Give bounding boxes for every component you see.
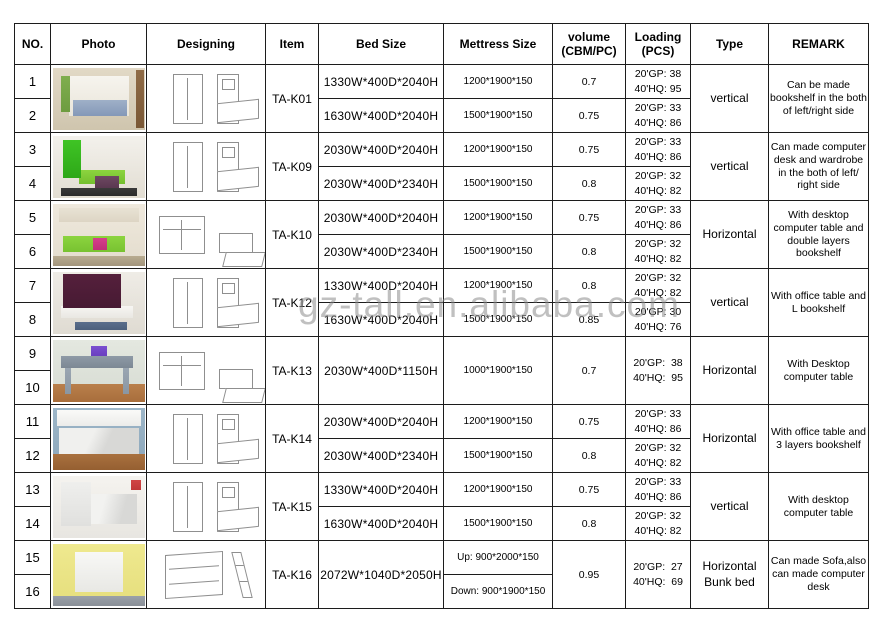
col-header-photo: Photo (51, 24, 147, 65)
mattress-size: 1200*1900*150 (444, 65, 553, 99)
product-photo (51, 133, 147, 201)
loading-20gp: 20'GP: 32 (626, 237, 690, 251)
row-number: 3 (15, 133, 51, 167)
loading-40hq: 40'HQ: 82 (626, 286, 690, 300)
volume-value: 0.8 (553, 269, 626, 303)
loading-20gp: 20'GP: 33 (626, 407, 690, 421)
cabinet-sketch-icon (173, 482, 203, 532)
remark-text: With desktop computer table (769, 473, 869, 541)
loading-value: 20'GP: 3240'HQ: 82 (626, 507, 691, 541)
col-header-volume-line1: volume (553, 30, 625, 44)
type-line: vertical (691, 295, 768, 311)
loading-40hq: 40'HQ: 69 (626, 575, 690, 589)
loading-40hq: 40'HQ: 95 (626, 82, 690, 96)
product-photo-image (53, 340, 145, 402)
cabinet-sketch-icon (159, 352, 205, 390)
mattress-size: 1500*1900*150 (444, 439, 553, 473)
mattress-size: 1200*1900*150 (444, 405, 553, 439)
loading-value: 20'GP: 3340'HQ: 86 (626, 473, 691, 507)
loading-20gp: 20'GP: 33 (626, 101, 690, 115)
bed-size: 2030W*400D*2040H (319, 405, 444, 439)
design-sketch (147, 337, 266, 405)
row-number: 7 (15, 269, 51, 303)
loading-value: 20'GP: 3340'HQ: 86 (626, 201, 691, 235)
product-spec-sheet: gz-tall.en.alibaba.com NO. Photo Designi… (0, 0, 886, 627)
remark-text: Can be made bookshelf in the both of lef… (769, 65, 869, 133)
volume-value: 0.75 (553, 133, 626, 167)
product-photo (51, 65, 147, 133)
item-code: TA-K09 (266, 133, 319, 201)
product-photo-image (53, 136, 145, 198)
col-header-type: Type (691, 24, 769, 65)
loading-40hq: 40'HQ: 82 (626, 184, 690, 198)
design-sketch (147, 473, 266, 541)
row-number: 11 (15, 405, 51, 439)
item-code: TA-K16 (266, 541, 319, 609)
col-header-loading-line1: Loading (626, 30, 690, 44)
volume-value: 0.8 (553, 507, 626, 541)
bed-size: 2030W*400D*2040H (319, 133, 444, 167)
loading-20gp: 20'GP: 33 (626, 135, 690, 149)
item-code: TA-K13 (266, 337, 319, 405)
remark-text: With desktop computer table and double l… (769, 201, 869, 269)
loading-40hq: 40'HQ: 86 (626, 422, 690, 436)
product-photo-image (53, 272, 145, 334)
bed-size: 2030W*400D*2340H (319, 167, 444, 201)
row-number: 1 (15, 65, 51, 99)
col-header-bed-size: Bed Size (319, 24, 444, 65)
mattress-size: 1200*1900*150 (444, 133, 553, 167)
type-line: Horizontal (691, 431, 768, 447)
type-line: Bunk bed (691, 575, 768, 591)
type-line: vertical (691, 159, 768, 175)
remark-text: With office table and L bookshelf (769, 269, 869, 337)
loading-20gp: 20'GP: 33 (626, 475, 690, 489)
product-photo-image (53, 408, 145, 470)
bed-size: 2030W*400D*2340H (319, 439, 444, 473)
row-number: 4 (15, 167, 51, 201)
loading-value: 20'GP: 3240'HQ: 82 (626, 167, 691, 201)
loading-20gp: 20'GP: 38 (626, 356, 690, 370)
loading-40hq: 40'HQ: 86 (626, 116, 690, 130)
loading-40hq: 40'HQ: 82 (626, 252, 690, 266)
col-header-remark: REMARK (769, 24, 869, 65)
loading-value: 20'GP: 3340'HQ: 86 (626, 99, 691, 133)
type-value: vertical (691, 269, 769, 337)
loading-40hq: 40'HQ: 86 (626, 150, 690, 164)
design-sketch (147, 405, 266, 473)
cabinet-sketch-icon (173, 414, 203, 464)
type-value: vertical (691, 65, 769, 133)
mattress-size: 1200*1900*150 (444, 473, 553, 507)
loading-40hq: 40'HQ: 86 (626, 218, 690, 232)
loading-20gp: 20'GP: 32 (626, 509, 690, 523)
row-number: 9 (15, 337, 51, 371)
volume-value: 0.75 (553, 99, 626, 133)
volume-value: 0.75 (553, 473, 626, 507)
loading-40hq: 40'HQ: 86 (626, 490, 690, 504)
product-photo (51, 405, 147, 473)
row-number: 16 (15, 575, 51, 609)
cabinet-sketch-icon (173, 74, 203, 124)
bed-size: 1330W*400D*2040H (319, 473, 444, 507)
bed-size: 2030W*400D*1150H (319, 337, 444, 405)
loading-20gp: 20'GP: 30 (626, 305, 690, 319)
loading-20gp: 20'GP: 38 (626, 67, 690, 81)
volume-value: 0.75 (553, 201, 626, 235)
loading-20gp: 20'GP: 32 (626, 271, 690, 285)
bed-size: 1330W*400D*2040H (319, 65, 444, 99)
type-line: vertical (691, 91, 768, 107)
type-line: vertical (691, 499, 768, 515)
loading-40hq: 40'HQ: 82 (626, 524, 690, 538)
product-photo (51, 201, 147, 269)
loading-40hq: 40'HQ: 82 (626, 456, 690, 470)
volume-value: 0.8 (553, 167, 626, 201)
product-photo-image (53, 544, 145, 606)
type-line: Horizontal (691, 227, 768, 243)
remark-text: With office table and 3 layers bookshelf (769, 405, 869, 473)
col-header-item: Item (266, 24, 319, 65)
loading-value: 20'GP: 3840'HQ: 95 (626, 65, 691, 99)
bunk-bed-sketch-icon (165, 550, 223, 598)
row-number: 2 (15, 99, 51, 133)
item-code: TA-K15 (266, 473, 319, 541)
bed-size: 2030W*400D*2040H (319, 201, 444, 235)
volume-value: 0.95 (553, 541, 626, 609)
type-value: Horizontal (691, 405, 769, 473)
mattress-size: 1200*1900*150 (444, 269, 553, 303)
type-value: Horizontal (691, 201, 769, 269)
loading-value: 20'GP: 3040'HQ: 76 (626, 303, 691, 337)
remark-text: Can made computer desk and wardrobe in t… (769, 133, 869, 201)
item-code: TA-K10 (266, 201, 319, 269)
bed-size: 1630W*400D*2040H (319, 99, 444, 133)
bed-size: 1330W*400D*2040H (319, 269, 444, 303)
remark-text: Can made Sofa,also can made computer des… (769, 541, 869, 609)
volume-value: 0.7 (553, 337, 626, 405)
cabinet-sketch-icon (173, 142, 203, 192)
col-header-volume-line2: (CBM/PC) (553, 44, 625, 58)
volume-value: 0.7 (553, 65, 626, 99)
row-number: 15 (15, 541, 51, 575)
type-value: Horizontal (691, 337, 769, 405)
bed-size: 1630W*400D*2040H (319, 303, 444, 337)
volume-value: 0.8 (553, 439, 626, 473)
volume-value: 0.8 (553, 235, 626, 269)
product-photo-image (53, 204, 145, 266)
loading-value: 20'GP: 3240'HQ: 82 (626, 235, 691, 269)
bed-size: 2030W*400D*2340H (319, 235, 444, 269)
bed-size: 1630W*400D*2040H (319, 507, 444, 541)
product-photo-image (53, 476, 145, 538)
mattress-size: 1500*1900*150 (444, 235, 553, 269)
loading-40hq: 40'HQ: 76 (626, 320, 690, 334)
loading-20gp: 20'GP: 32 (626, 441, 690, 455)
product-photo (51, 337, 147, 405)
col-header-mattress-size: Mettress Size (444, 24, 553, 65)
col-header-loading-line2: (PCS) (626, 44, 690, 58)
design-sketch (147, 541, 266, 609)
loading-value: 20'GP: 3340'HQ: 86 (626, 133, 691, 167)
row-number: 13 (15, 473, 51, 507)
type-value: HorizontalBunk bed (691, 541, 769, 609)
loading-value: 20'GP: 3240'HQ: 82 (626, 269, 691, 303)
remark-text: With Desktop computer table (769, 337, 869, 405)
mattress-size: 1200*1900*150 (444, 201, 553, 235)
volume-value: 0.85 (553, 303, 626, 337)
mattress-size-down: Down: 900*1900*150 (444, 575, 553, 609)
design-sketch (147, 133, 266, 201)
loading-40hq: 40'HQ: 95 (626, 371, 690, 385)
col-header-volume: volume(CBM/PC) (553, 24, 626, 65)
loading-value: 20'GP: 3340'HQ: 86 (626, 405, 691, 439)
item-code: TA-K12 (266, 269, 319, 337)
open-bed-sketch-icon (217, 74, 239, 124)
open-bed-sketch-icon (217, 482, 239, 532)
mattress-size: 1500*1900*150 (444, 303, 553, 337)
loading-value: 20'GP: 3240'HQ: 82 (626, 439, 691, 473)
loading-20gp: 20'GP: 33 (626, 203, 690, 217)
ladder-sketch-icon (231, 552, 252, 598)
open-bed-sketch-icon (219, 233, 253, 253)
mattress-size: 1500*1900*150 (444, 167, 553, 201)
loading-value: 20'GP: 3840'HQ: 95 (626, 337, 691, 405)
col-header-designing: Designing (147, 24, 266, 65)
open-bed-sketch-icon (217, 142, 239, 192)
design-sketch (147, 201, 266, 269)
type-value: vertical (691, 133, 769, 201)
loading-20gp: 20'GP: 32 (626, 169, 690, 183)
row-number: 14 (15, 507, 51, 541)
type-line: Horizontal (691, 363, 768, 379)
product-photo (51, 473, 147, 541)
mattress-size: 1000*1900*150 (444, 337, 553, 405)
item-code: TA-K14 (266, 405, 319, 473)
volume-value: 0.75 (553, 405, 626, 439)
design-sketch (147, 269, 266, 337)
col-header-no: NO. (15, 24, 51, 65)
spec-table: NO. Photo Designing Item Bed Size Mettre… (14, 23, 869, 609)
row-number: 10 (15, 371, 51, 405)
loading-value: 20'GP: 2740'HQ: 69 (626, 541, 691, 609)
open-bed-sketch-icon (219, 369, 253, 389)
row-number: 12 (15, 439, 51, 473)
col-header-loading: Loading(PCS) (626, 24, 691, 65)
design-sketch (147, 65, 266, 133)
item-code: TA-K01 (266, 65, 319, 133)
product-photo-image (53, 68, 145, 130)
cabinet-sketch-icon (173, 278, 203, 328)
mattress-size-up: Up: 900*2000*150 (444, 541, 553, 575)
bed-size: 2072W*1040D*2050H (319, 541, 444, 609)
product-photo (51, 541, 147, 609)
open-bed-sketch-icon (217, 414, 239, 464)
open-bed-sketch-icon (217, 278, 239, 328)
product-photo (51, 269, 147, 337)
type-line: Horizontal (691, 559, 768, 575)
row-number: 6 (15, 235, 51, 269)
loading-20gp: 20'GP: 27 (626, 560, 690, 574)
mattress-size: 1500*1900*150 (444, 507, 553, 541)
mattress-size: 1500*1900*150 (444, 99, 553, 133)
row-number: 5 (15, 201, 51, 235)
row-number: 8 (15, 303, 51, 337)
type-value: vertical (691, 473, 769, 541)
cabinet-sketch-icon (159, 216, 205, 254)
